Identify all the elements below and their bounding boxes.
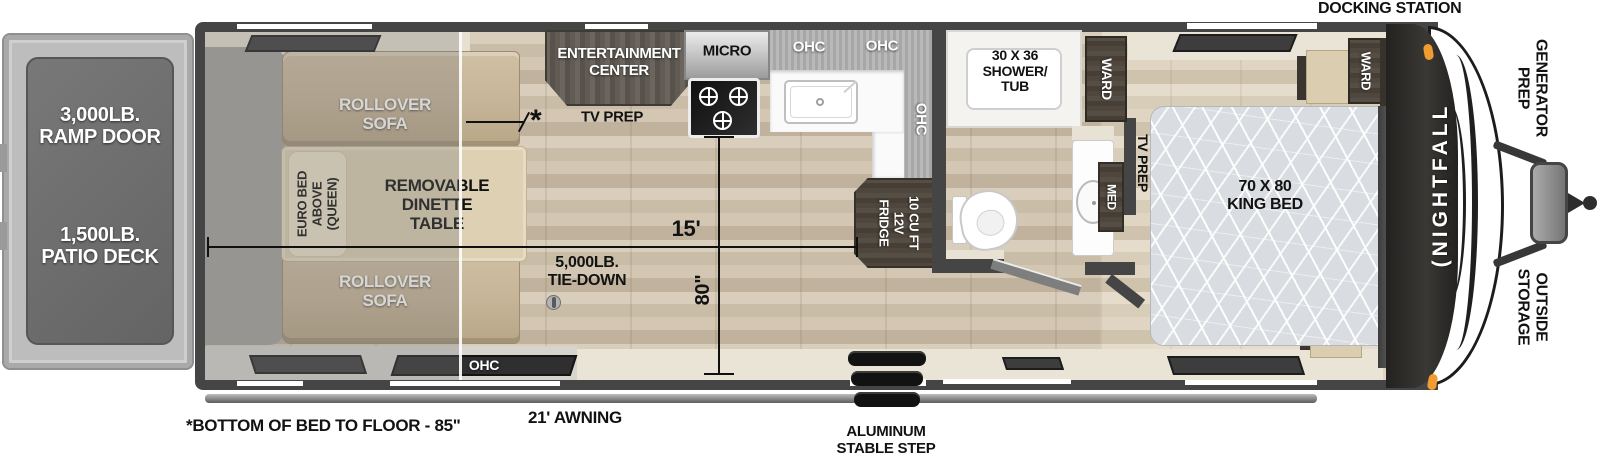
king-bed <box>1150 106 1380 346</box>
fridge-label: 10 CU FT12VFRIDGE <box>876 196 921 250</box>
vanity-drain-icon <box>1092 201 1096 205</box>
entertainment-center-label: ENTERTAINMENTCENTER <box>549 46 689 80</box>
wall-segment <box>1187 23 1317 29</box>
dimension-tick <box>704 373 734 375</box>
sink-drain-icon <box>816 98 824 106</box>
ramp-hinge-icon <box>0 144 7 172</box>
ramp-hinge-icon <box>0 222 7 250</box>
microwave-label: MICRO <box>703 44 752 61</box>
length-dimension-label: 15' <box>650 217 722 242</box>
step-tread <box>854 392 920 407</box>
patio-deck-label: 1,500LB.PATIO DECK <box>26 224 174 269</box>
vanity-backsplash <box>1072 126 1114 140</box>
entry-step <box>846 351 928 411</box>
dimension-tick <box>856 237 858 257</box>
bed-height-note: *BOTTOM OF BED TO FLOOR - 85" <box>186 416 461 435</box>
kitchen-counter-return <box>872 132 904 178</box>
step-tread <box>848 351 926 366</box>
docking-station-label: DOCKING STATION <box>1318 0 1461 18</box>
step-tread <box>851 371 923 386</box>
awning-bar <box>205 394 1317 403</box>
ohc-label-kitchen-left: OHC <box>793 40 825 57</box>
wall-segment <box>390 381 560 386</box>
ohc-label-kitchen-side: OHC <box>912 103 929 135</box>
propane-cover <box>1530 162 1568 244</box>
width-dimension-label: 80" <box>692 275 714 306</box>
ward-bedroom-label: WARD <box>1358 52 1373 91</box>
window <box>1002 357 1064 370</box>
wall-segment <box>943 379 1071 384</box>
length-dimension-line <box>208 246 857 248</box>
window <box>1167 356 1305 375</box>
ramp-door-panel <box>26 57 174 345</box>
tie-down-icon <box>546 295 561 310</box>
outside-storage-label: OUTSIDESTORAGE <box>1513 269 1550 346</box>
dimension-tick <box>704 136 734 138</box>
bath-wall-stub-top <box>946 250 1004 259</box>
toilet-bowl <box>974 208 1006 238</box>
awning-label: 21' AWNING <box>528 408 622 427</box>
ramp-door-label: 3,000LB.RAMP DOOR <box>26 104 174 149</box>
tie-down-slot <box>552 297 556 308</box>
kitchen-sink <box>784 80 858 124</box>
tv-prep-bedroom-label: TV PREP <box>1134 134 1150 192</box>
king-bed-label: 70 X 80KING BED <box>1165 178 1365 214</box>
burner-icon <box>699 87 718 106</box>
garage-ohc-label: OHC <box>469 358 499 374</box>
burner-icon <box>729 87 748 106</box>
nightstand-top <box>1306 50 1351 104</box>
asterisk-marker: * <box>530 104 541 138</box>
shower-label: 30 X 36SHOWER/TUB <box>951 48 1079 95</box>
burner-icon <box>713 111 732 130</box>
stove <box>688 78 760 138</box>
wall-segment <box>585 24 648 29</box>
bed-height-dimension-line <box>466 121 524 123</box>
bath-wall-left <box>932 30 946 273</box>
wall-segment <box>237 24 372 29</box>
bedroom-door-frame <box>1085 262 1135 275</box>
hitch-ball-icon <box>1583 196 1597 210</box>
brand-logo: (NIGHTFALL <box>1429 103 1453 268</box>
generator-prep-label: GENERATORPREP <box>1513 28 1550 148</box>
wall-segment <box>237 381 303 386</box>
wall-segment <box>1185 380 1317 385</box>
tie-down-label: 5,000LB.TIE-DOWN <box>518 254 656 290</box>
crescent-icon: ( <box>1429 256 1452 267</box>
window <box>1172 34 1297 52</box>
ohc-label-kitchen-right: OHC <box>866 39 898 56</box>
floorplan-scene: 3,000LB.RAMP DOOR 1,500LB.PATIO DECK ROL… <box>0 0 1600 461</box>
dimension-tick <box>207 237 209 257</box>
ward-bath-label: WARD <box>1098 58 1114 100</box>
garage-overlay <box>205 32 462 380</box>
med-label: MED <box>1104 184 1117 210</box>
width-dimension-line <box>718 137 720 375</box>
tv-prep-main-label: TV PREP <box>581 110 643 127</box>
step-label: ALUMINUMSTABLE STEP <box>802 424 970 458</box>
